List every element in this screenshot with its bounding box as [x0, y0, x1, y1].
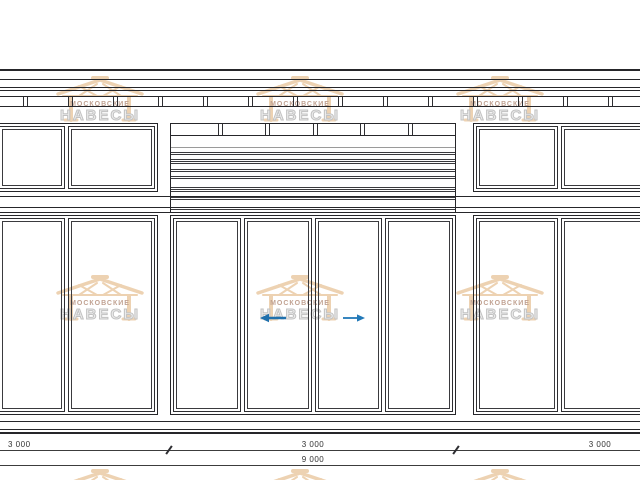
louver-slat-line	[171, 176, 455, 177]
glass-pane	[176, 221, 238, 409]
fascia-line-2	[0, 207, 640, 208]
right-transom-window-1	[476, 126, 558, 189]
louver-fascia-box	[170, 135, 456, 213]
glass-pane	[388, 221, 450, 409]
left-transom-section	[0, 123, 158, 192]
dimension-label-bay-1: 3 000	[8, 440, 48, 449]
sliding-door-panel-1	[173, 218, 241, 412]
sill-line	[0, 421, 640, 422]
sliding-door-section	[170, 215, 456, 415]
louver-slat-line	[171, 147, 455, 148]
slide-left-arrow-icon	[258, 310, 290, 326]
louver-slat-line	[171, 187, 455, 188]
right-panel-2	[561, 218, 640, 412]
roof-line-4	[0, 90, 640, 91]
louver-slat-line	[171, 159, 455, 160]
base-line-1	[0, 429, 640, 430]
drawing-sheet: МОСКОВСКИЕНАВЕСЫМОСКОВСКИЕНАВЕСЫМОСКОВСК…	[0, 0, 640, 480]
louver-slat-line	[171, 169, 455, 170]
elevation-drawing: 3 000 3 000 3 000 9 000	[0, 0, 640, 480]
roof-post	[428, 97, 433, 106]
louver-slat-line	[171, 163, 455, 164]
roof-line-5	[0, 96, 640, 97]
dimension-line-overall	[0, 465, 640, 466]
roof-post	[68, 97, 73, 106]
glass-pane	[479, 221, 555, 409]
glass-pane	[564, 129, 640, 186]
glass-pane	[564, 221, 640, 409]
roof-post	[563, 97, 568, 106]
rail-post	[313, 124, 318, 135]
fascia-line-3	[0, 212, 640, 213]
left-glazing-section	[0, 215, 158, 415]
louver-slat-line	[171, 209, 455, 210]
glass-pane	[71, 129, 152, 186]
roof-post	[293, 97, 298, 106]
roof-line-3	[0, 87, 640, 88]
glass-pane	[71, 221, 152, 409]
roof-post	[203, 97, 208, 106]
base-line-2	[0, 432, 640, 434]
roof-post	[23, 97, 28, 106]
roof-line-2	[0, 79, 640, 80]
roof-post	[158, 97, 163, 106]
right-glazing-section	[473, 215, 640, 415]
left-panel-2	[68, 218, 155, 412]
roof-post	[518, 97, 523, 106]
rail-post	[408, 124, 413, 135]
louver-slat-line	[171, 191, 455, 192]
roof-post	[338, 97, 343, 106]
roof-line-1	[0, 69, 640, 71]
rail-post	[360, 124, 365, 135]
right-panel-1	[476, 218, 558, 412]
roof-post	[383, 97, 388, 106]
sliding-door-panel-4	[385, 218, 453, 412]
right-transom-window-2	[561, 126, 640, 189]
glass-pane	[2, 221, 62, 409]
louver-slat-line	[171, 171, 455, 172]
left-transom-window-2	[68, 126, 155, 189]
dimension-line-bays	[0, 450, 640, 451]
rail-post	[265, 124, 270, 135]
roof-line-6	[0, 106, 640, 107]
louver-slat-line	[171, 197, 455, 198]
louver-slat-line	[171, 161, 455, 162]
fascia-line-1	[0, 196, 640, 197]
louver-slat-line	[171, 189, 455, 190]
dimension-label-overall: 9 000	[293, 455, 333, 464]
slide-right-arrow-icon	[340, 310, 368, 326]
louver-slat-line	[171, 178, 455, 179]
louver-slat-line	[171, 152, 455, 153]
right-transom-section	[473, 123, 640, 192]
roof-post	[473, 97, 478, 106]
left-panel-1	[0, 218, 65, 412]
roof-post	[608, 97, 613, 106]
louver-slat-line	[171, 199, 455, 200]
dimension-label-bay-2: 3 000	[293, 440, 333, 449]
roof-post	[113, 97, 118, 106]
roof-post	[248, 97, 253, 106]
rail-post	[218, 124, 223, 135]
glass-pane	[2, 129, 62, 186]
dimension-label-bay-3: 3 000	[580, 440, 620, 449]
left-transom-window-1	[0, 126, 65, 189]
louver-slat-line	[171, 154, 455, 155]
glass-pane	[479, 129, 555, 186]
